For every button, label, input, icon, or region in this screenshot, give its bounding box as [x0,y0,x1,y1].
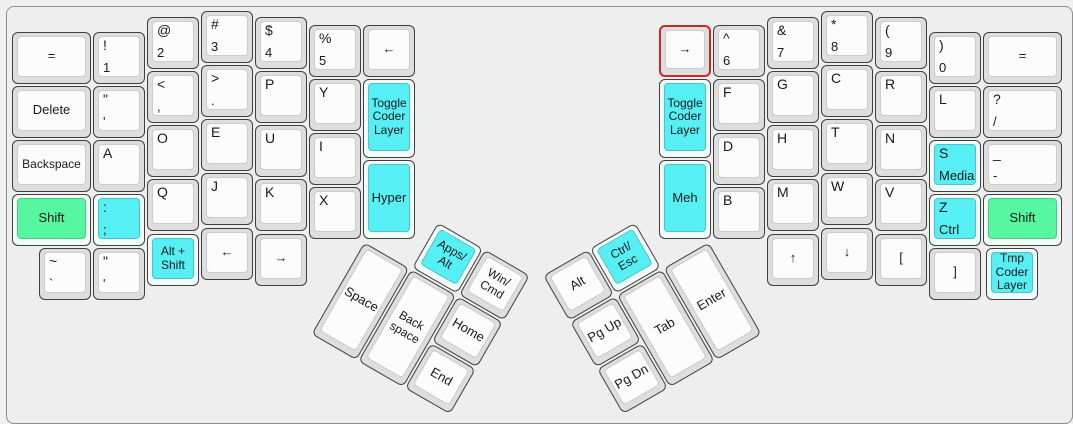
key-label-top: : [103,199,107,215]
key-label-center: Pg Dn [613,362,652,393]
key-backspace-left[interactable]: Backspace [12,140,91,192]
key-label-center: Backspace [22,158,81,171]
keycap-face: ← [368,29,410,70]
key-grave[interactable]: ~` [39,248,91,300]
key-label-center: ← [383,42,396,57]
keycap-face: Alt + Shift [152,238,194,279]
key-label-bottom: Ctrl [939,222,959,237]
key-7[interactable]: &7 [767,17,819,69]
key-9[interactable]: (9 [875,17,927,69]
keycap-face: I [314,137,356,178]
keycap-face: ~` [44,252,86,293]
key-5[interactable]: %5 [309,25,361,77]
key-label-top: # [211,16,219,32]
key-label-center: Tab [652,315,677,338]
keycap-face: L [934,90,976,131]
key-label-top: P [265,76,274,92]
keycap-face: (9 [880,21,922,62]
key-c[interactable]: C [821,65,873,117]
keycap-face: M [772,183,814,224]
keycap-face: <, [152,75,194,116]
keycap-face: :; [98,198,140,239]
key-label-center: Toggle Coder Layer [371,97,406,137]
keycap-face: "' [98,252,140,293]
key-label-center: [ [899,251,903,266]
key-label-top: J [211,178,218,194]
key-label-top: O [157,130,168,146]
key-y[interactable]: Y [309,79,361,131]
key-slash[interactable]: ?/ [983,86,1062,138]
keycap-face: A [98,144,140,185]
key-g[interactable]: G [767,71,819,123]
key-label-bottom: 3 [211,39,218,54]
keycap-face: Tmp Coder Layer [991,252,1033,293]
key-label-top: T [831,124,840,140]
key-label-center: ] [953,265,957,280]
key-label-bottom: / [993,114,997,129]
key-label-top: " [103,91,108,107]
key-label-bottom: ' [103,276,105,291]
key-quote-2[interactable]: "' [93,248,145,300]
key-minus[interactable]: _- [983,140,1062,192]
key-label-top: Z [939,199,948,215]
key-r[interactable]: R [875,71,927,123]
key-label-top: * [831,16,836,32]
keycap-face: Hyper [368,164,410,232]
key-label-center: Meh [672,191,697,206]
key-label-bottom: 7 [777,45,784,60]
key-label-center: Home [450,316,487,346]
keycap-face: Shift [988,198,1057,239]
keycap-face: *8 [826,15,868,56]
key-i[interactable]: I [309,133,361,185]
key-label-bottom: . [211,93,215,108]
key-label-center: ↓ [844,245,851,260]
key-label-top: " [103,253,108,269]
key-label-top: C [831,70,841,86]
key-meh[interactable]: Meh [659,160,711,239]
key-f[interactable]: F [713,79,765,131]
key-label-bottom: - [993,168,997,183]
keycap-face: )0 [934,36,976,77]
keycap-face: ↑ [772,238,814,279]
key-n[interactable]: N [875,125,927,177]
key-label-top: G [777,76,788,92]
key-label-top: ^ [723,30,730,46]
keycap-face: Toggle Coder Layer [664,83,706,151]
key-label-bottom: Media [939,168,974,183]
keycap-face: W [826,177,868,218]
keycap-face: @2 [152,21,194,62]
key-label-center: = [48,49,56,64]
key-label-top: ? [993,91,1001,107]
key-arrow-up[interactable]: ↑ [767,234,819,286]
key-label-top: E [211,124,220,140]
key-quote[interactable]: "' [93,86,145,138]
key-o[interactable]: O [147,125,199,177]
keycap-face: B [718,191,760,232]
key-label-bottom: ' [103,114,105,129]
keycap-face: #3 [206,15,248,56]
key-t[interactable]: T [821,119,873,171]
key-label-top: F [723,84,732,100]
key-label-top: V [885,184,894,200]
key-b[interactable]: B [713,187,765,239]
keycap-face: → [665,30,705,69]
key-label-top: @ [157,22,171,38]
key-u[interactable]: U [255,125,307,177]
key-comma[interactable]: <, [147,71,199,123]
key-label-bottom: 5 [319,53,326,68]
key-label-bottom: 2 [157,45,164,60]
key-w[interactable]: W [821,173,873,225]
keycap-face: !1 [98,36,140,77]
keycap-face: O [152,129,194,170]
key-arrow-down[interactable]: ↓ [821,228,873,280]
key-e[interactable]: E [201,119,253,171]
key-label-center: = [1019,49,1027,64]
key-semicolon[interactable]: :; [93,194,145,246]
key-label-center: Alt [568,274,588,294]
key-label-top: ! [103,37,107,53]
key-label-center: Hyper [372,191,407,206]
key-q[interactable]: Q [147,179,199,231]
key-label-top: < [157,76,165,92]
key-label-top: L [939,91,947,107]
keycap-face: ↓ [826,232,868,273]
key-hyper[interactable]: Hyper [363,160,415,239]
key-label-bottom: 6 [723,53,730,68]
key-label-bottom: ; [103,222,107,237]
keycap-face: X [314,191,356,232]
key-delete[interactable]: Delete [12,86,91,138]
key-label-bottom: 4 [265,45,272,60]
keycap-face: Meh [664,164,706,232]
keycap-face: G [772,75,814,116]
keycap-face: Y [314,83,356,124]
key-label-bottom: 1 [103,60,110,75]
key-label-top: Y [319,84,328,100]
keycap-face: "' [98,90,140,131]
key-label-center: Delete [33,103,71,118]
keycap-face: N [880,129,922,170]
key-left-bracket[interactable]: [ [875,234,927,286]
key-arrow-right-bottom[interactable]: → [255,234,307,286]
keycap-face: = [988,36,1057,77]
key-shift-left[interactable]: Shift [12,194,91,246]
key-v[interactable]: V [875,179,927,231]
keycap-face: [ [880,238,922,279]
key-label-top: I [319,138,323,154]
key-label-top: D [723,138,733,154]
keycap-face: >. [206,69,248,110]
keycap-face: = [17,36,86,77]
key-8[interactable]: *8 [821,11,873,63]
key-3[interactable]: #3 [201,11,253,63]
key-x[interactable]: X [309,187,361,239]
key-label-top: M [777,184,789,200]
keycap-face: Backspace [17,144,86,185]
key-label-center: Space [342,284,381,315]
key-period[interactable]: >. [201,65,253,117]
key-label-top: > [211,70,219,86]
key-shift-right[interactable]: Shift [983,194,1062,246]
keycap-face: H [772,129,814,170]
key-arrow-left-top[interactable]: ← [363,25,415,77]
key-1[interactable]: !1 [93,32,145,84]
key-equals-right[interactable]: = [983,32,1062,84]
keycap-face: ] [934,252,976,293]
keycap-face: &7 [772,21,814,62]
key-label-center: Back space [387,307,428,346]
key-label-top: U [265,130,275,146]
keycap-face: V [880,183,922,224]
key-label-top: A [103,145,112,161]
keycap-face: ^6 [718,29,760,70]
key-label-center: Win/ Cmd [477,266,512,302]
keycap-face: $4 [260,21,302,62]
key-k[interactable]: K [255,179,307,231]
key-2[interactable]: @2 [147,17,199,69]
keycap-face: Shift [17,198,86,239]
keycap-face: F [718,83,760,124]
key-right-bracket[interactable]: ] [929,248,981,300]
key-label-bottom: ` [49,276,53,291]
key-l[interactable]: L [929,86,981,138]
key-label-top: N [885,130,895,146]
keycap-face: E [206,123,248,164]
key-label-top: K [265,184,274,200]
key-label-center: Tmp Coder Layer [996,252,1029,292]
key-label-center: ← [221,245,234,260]
key-label-top: H [777,130,787,146]
key-tmp-coder-layer[interactable]: Tmp Coder Layer [986,248,1038,300]
key-label-top: S [939,145,948,161]
key-label-top: X [319,192,328,208]
key-label-center: Toggle Coder Layer [667,97,702,137]
key-label-top: R [885,76,895,92]
key-label-bottom: 0 [939,60,946,75]
key-equals-left[interactable]: = [12,32,91,84]
key-label-top: Q [157,184,168,200]
keycap-face: J [206,177,248,218]
key-toggle-coder-layer-left[interactable]: Toggle Coder Layer [363,79,415,158]
key-0[interactable]: )0 [929,32,981,84]
keycap-face: K [260,183,302,224]
keycap-face: ← [206,232,248,273]
key-label-bottom: 9 [885,45,892,60]
keycap-face: → [260,238,302,279]
keyboard-canvas: =!1@2#3$4%5←Delete"'<,>.PYToggle Coder L… [0,0,1073,424]
key-h[interactable]: H [767,125,819,177]
key-label-top: ( [885,22,890,38]
keycap-face: D [718,137,760,178]
key-p[interactable]: P [255,71,307,123]
key-s-media[interactable]: SMedia [929,140,981,192]
key-label-center: Alt + Shift [161,245,185,272]
keycap-face: R [880,75,922,116]
key-label-center: Ctrl/ Esc [608,240,640,274]
key-label-center: → [275,251,288,266]
keycap-face: Delete [17,90,86,131]
key-label-center: → [679,42,692,57]
key-label-top: B [723,192,732,208]
key-m[interactable]: M [767,179,819,231]
keycap-face: SMedia [934,144,976,185]
key-label-bottom: , [157,99,161,114]
key-label-center: Pg Up [586,315,625,346]
key-label-center: Shift [38,211,64,226]
key-label-top: ~ [49,253,57,269]
key-label-bottom: 8 [831,39,838,54]
keycap-face: P [260,75,302,116]
keycap-face: %5 [314,29,356,70]
key-label-center: End [428,365,455,389]
key-z-ctrl[interactable]: ZCtrl [929,194,981,246]
key-alt-shift[interactable]: Alt + Shift [147,234,199,286]
key-label-top: $ [265,22,273,38]
key-label-center: Enter [695,286,729,314]
key-d[interactable]: D [713,133,765,185]
keycap-face: ZCtrl [934,198,976,239]
keycap-face: U [260,129,302,170]
keycap-face: Q [152,183,194,224]
key-label-top: ) [939,37,944,53]
keycap-face: C [826,69,868,110]
keycap-face: Toggle Coder Layer [368,83,410,151]
key-label-center: Apps/ Alt [428,238,468,277]
key-arrow-left-bottom[interactable]: ← [201,228,253,280]
key-label-top: & [777,22,786,38]
key-toggle-coder-layer-right[interactable]: Toggle Coder Layer [659,79,711,158]
key-j[interactable]: J [201,173,253,225]
keycap-face: ?/ [988,90,1057,131]
key-label-center: ↑ [790,251,797,266]
key-label-top: % [319,30,331,46]
key-label-top: W [831,178,844,194]
key-label-top: _ [993,145,1001,161]
keycap-face: T [826,123,868,164]
key-4[interactable]: $4 [255,17,307,69]
keycap-face: _- [988,144,1057,185]
key-label-center: Shift [1009,211,1035,226]
key-6[interactable]: ^6 [713,25,765,77]
key-a[interactable]: A [93,140,145,192]
key-arrow-right-selected[interactable]: → [659,25,711,77]
